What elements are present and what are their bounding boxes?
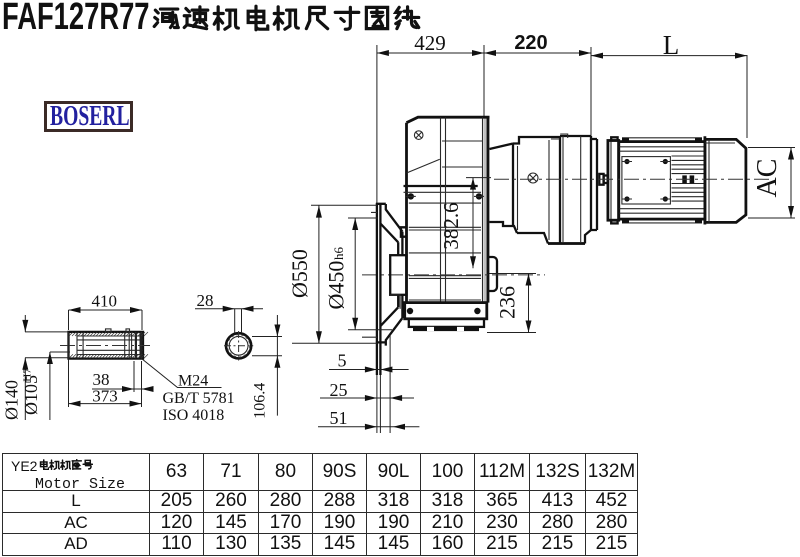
svg-text:Ø450: Ø450 — [324, 261, 349, 310]
svg-text:220: 220 — [514, 32, 547, 54]
svg-text:236: 236 — [495, 286, 520, 319]
svg-text:Ø140: Ø140 — [2, 380, 22, 420]
svg-text:410: 410 — [91, 292, 117, 311]
svg-text:GB/T 5781: GB/T 5781 — [163, 390, 235, 407]
svg-text:51: 51 — [330, 408, 348, 428]
svg-text:ISO 4018: ISO 4018 — [163, 407, 225, 424]
svg-text:M24: M24 — [178, 373, 208, 390]
svg-text:373: 373 — [92, 387, 118, 406]
svg-text:429: 429 — [414, 31, 446, 55]
svg-text:106.4: 106.4 — [251, 383, 268, 419]
svg-text:AC: AC — [752, 159, 783, 198]
svg-text:25: 25 — [330, 380, 348, 400]
svg-text:H7: H7 — [22, 368, 34, 382]
svg-text:28: 28 — [197, 291, 214, 310]
svg-text:L: L — [663, 30, 680, 60]
svg-text:382.6: 382.6 — [439, 202, 463, 249]
svg-text:5: 5 — [338, 351, 347, 371]
svg-text:Ø550: Ø550 — [287, 249, 312, 298]
svg-text:h6: h6 — [331, 247, 346, 261]
